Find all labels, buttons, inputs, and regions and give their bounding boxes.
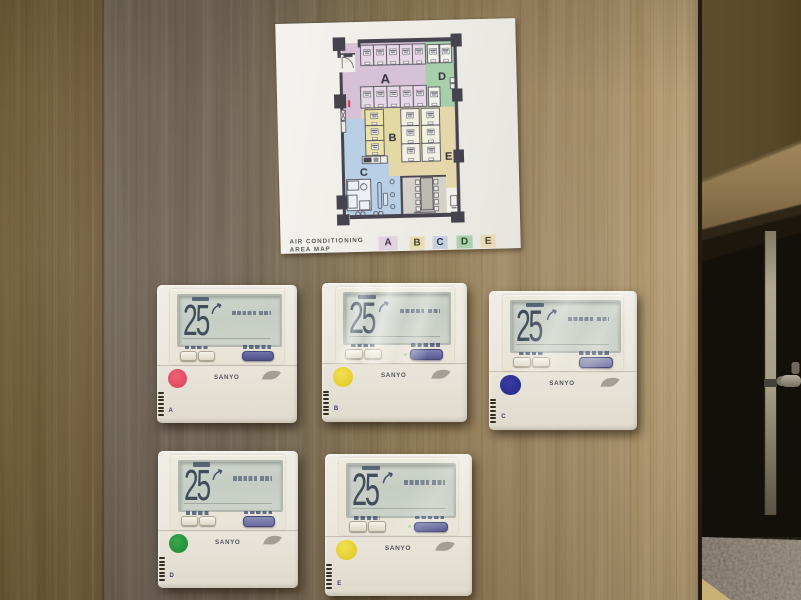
svg-text:A: A	[380, 71, 390, 86]
svg-text:C: C	[360, 167, 368, 179]
svg-text:E: E	[445, 151, 453, 163]
svg-text:D: D	[438, 71, 446, 83]
svg-text:B: B	[388, 132, 396, 144]
